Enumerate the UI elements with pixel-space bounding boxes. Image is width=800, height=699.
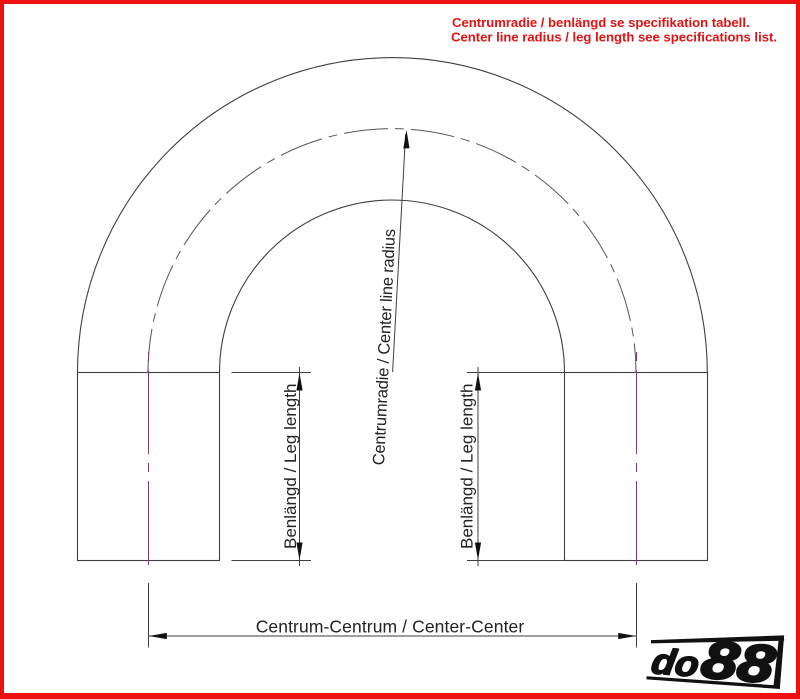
svg-text:Benlängd / Leg length: Benlängd / Leg length [281,384,300,549]
svg-text:Centrum-Centrum / Center-Cente: Centrum-Centrum / Center-Center [256,617,525,637]
svg-text:Centrumradie / benlängd se spe: Centrumradie / benlängd se specifikation… [452,15,750,30]
svg-text:88: 88 [697,631,779,695]
svg-text:Benlängd / Leg length: Benlängd / Leg length [458,384,477,549]
svg-text:do: do [649,640,703,684]
svg-text:Center line radius / leg lengt: Center line radius / leg length see spec… [451,30,777,45]
